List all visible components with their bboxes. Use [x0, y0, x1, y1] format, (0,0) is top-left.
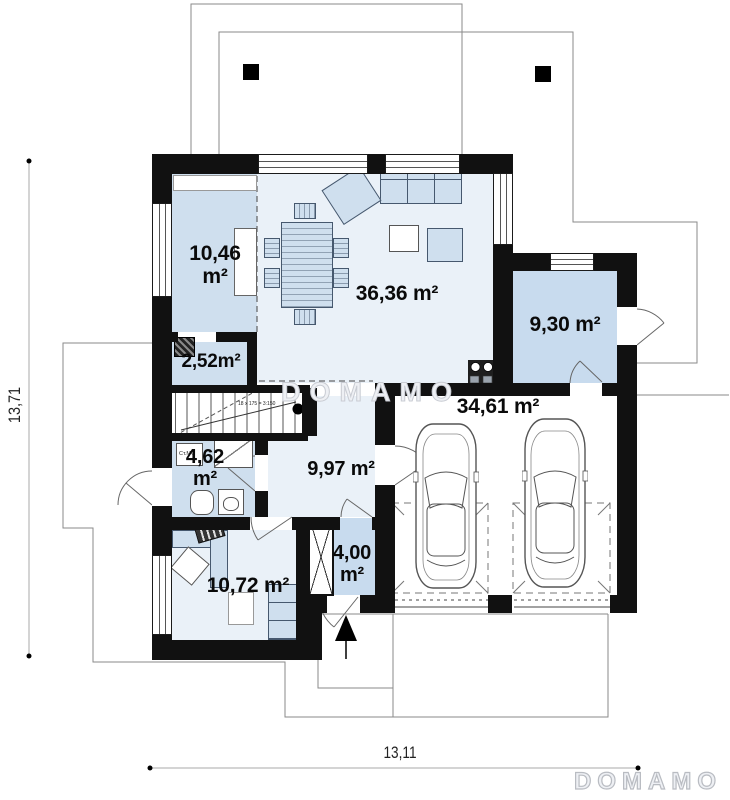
room-label-utility: 9,30 m²: [513, 314, 617, 337]
room-label-study: 10,72 m²: [180, 575, 316, 598]
door-opening: [570, 383, 602, 396]
room-label-pantry: 2,52m²: [172, 352, 250, 373]
wall: [152, 517, 250, 530]
room-label-vestibule: 4,00m²: [324, 543, 380, 586]
dining-chair: [294, 309, 316, 325]
window: [385, 154, 460, 174]
dining-chair: [264, 268, 280, 288]
washbasin: [190, 490, 214, 515]
room-label-bedroom: 10,46m²: [172, 243, 258, 288]
window: [152, 203, 172, 297]
wall: [368, 154, 385, 174]
window: [493, 173, 513, 245]
wall: [152, 433, 308, 441]
watermark-center: DOMAMO: [281, 377, 461, 408]
door-opening: [152, 468, 172, 506]
car-icon: [413, 420, 479, 592]
wall: [152, 332, 178, 342]
brand-logo: DOMAMO: [574, 768, 722, 796]
dining-table: [281, 222, 333, 308]
wall: [292, 517, 340, 530]
door-opening: [255, 455, 268, 491]
wall: [610, 595, 637, 613]
dimension-vertical: 13,71: [5, 380, 27, 431]
stairs-treads: [178, 390, 296, 436]
dimension-horizontal: 13,11: [344, 743, 456, 765]
car-icon: [522, 415, 588, 591]
bedroom-closet: [173, 175, 257, 191]
armchair: [427, 228, 463, 262]
wall: [152, 640, 314, 660]
stove-icon: [468, 360, 495, 385]
toilet: [218, 489, 244, 515]
dining-chair: [294, 203, 316, 219]
window: [258, 154, 368, 174]
wall: [488, 595, 512, 613]
room-label-living: 36,36 m²: [327, 283, 467, 306]
wall: [372, 517, 395, 530]
door-opening: [617, 307, 637, 345]
room-label-bathroom: 4,62m²: [172, 447, 238, 490]
dining-chair: [264, 238, 280, 258]
room-label-hall: 9,97 m²: [286, 459, 396, 481]
window: [550, 253, 594, 271]
wall: [360, 595, 395, 613]
coffee-table: [389, 225, 419, 252]
floor-plan: Ст.МФ: [0, 0, 730, 800]
stairs-annotation: 18 x 175 = 3:150: [238, 401, 275, 407]
sofa: [380, 170, 462, 204]
dining-chair: [333, 238, 349, 258]
window: [152, 555, 172, 635]
